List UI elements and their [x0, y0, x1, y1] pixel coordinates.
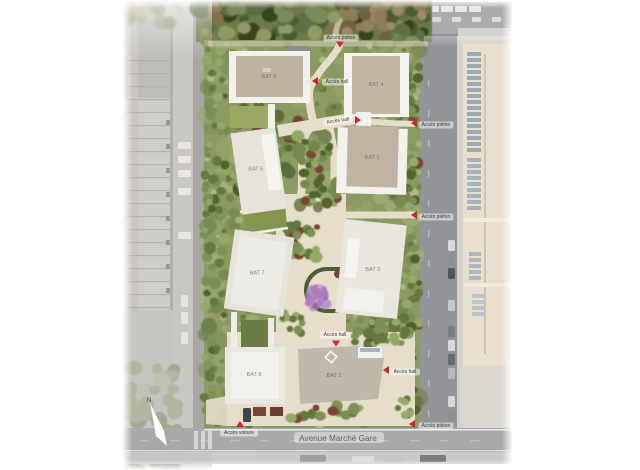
- svg-text:Accès piéton: Accès piéton: [422, 214, 451, 220]
- svg-text:BAT 6: BAT 6: [248, 166, 263, 172]
- svg-text:Avenue Marché Gare: Avenue Marché Gare: [299, 434, 377, 443]
- svg-text:Accès hall: Accès hall: [324, 332, 347, 338]
- svg-text:BAT 5: BAT 5: [261, 74, 276, 80]
- svg-text:Accès piéton: Accès piéton: [327, 35, 356, 41]
- svg-text:Accès voiture: Accès voiture: [224, 430, 254, 436]
- svg-text:N: N: [147, 398, 151, 404]
- svg-text:BAT 3: BAT 3: [364, 155, 379, 161]
- svg-text:Accès piéton: Accès piéton: [422, 122, 451, 128]
- svg-text:Accès piéton: Accès piéton: [422, 423, 451, 429]
- svg-text:BAT 4: BAT 4: [368, 82, 383, 88]
- svg-text:BAT 7: BAT 7: [250, 271, 265, 277]
- svg-text:BAT 2: BAT 2: [365, 267, 380, 273]
- svg-text:BAT 1: BAT 1: [326, 373, 341, 379]
- svg-text:Accès hall: Accès hall: [326, 79, 349, 85]
- svg-text:BAT 8: BAT 8: [246, 372, 261, 378]
- svg-text:Accès hall: Accès hall: [394, 369, 417, 375]
